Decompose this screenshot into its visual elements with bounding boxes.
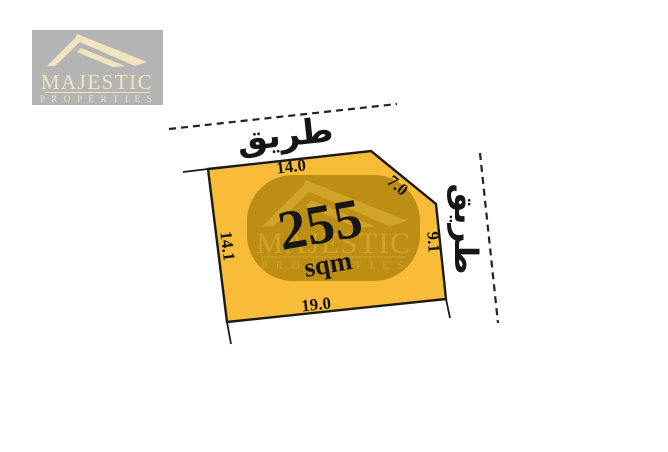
dimension-right: 9.1: [423, 231, 443, 254]
dimension-left: 14.1: [216, 230, 238, 262]
extension-top-left: [183, 169, 208, 172]
road-label-right: طريق: [447, 184, 485, 275]
road-label-top: طريق: [235, 110, 335, 160]
dimension-bottom: 19.0: [300, 293, 332, 315]
extension-bottom-right: [446, 299, 450, 318]
land-plot-diagram: MAJESTIC P R O P E R T I E S طريق طريق: [0, 0, 668, 452]
brand-name: MAJESTIC: [41, 70, 153, 94]
diagram-svg: MAJESTIC P R O P E R T I E S طريق طريق: [0, 0, 668, 452]
brand-subtitle: P R O P E R T I E S: [40, 94, 154, 104]
brand-logo-block: MAJESTIC P R O P E R T I E S: [32, 30, 163, 105]
dimension-top: 14.0: [275, 155, 307, 177]
extension-bottom-left: [227, 322, 231, 344]
